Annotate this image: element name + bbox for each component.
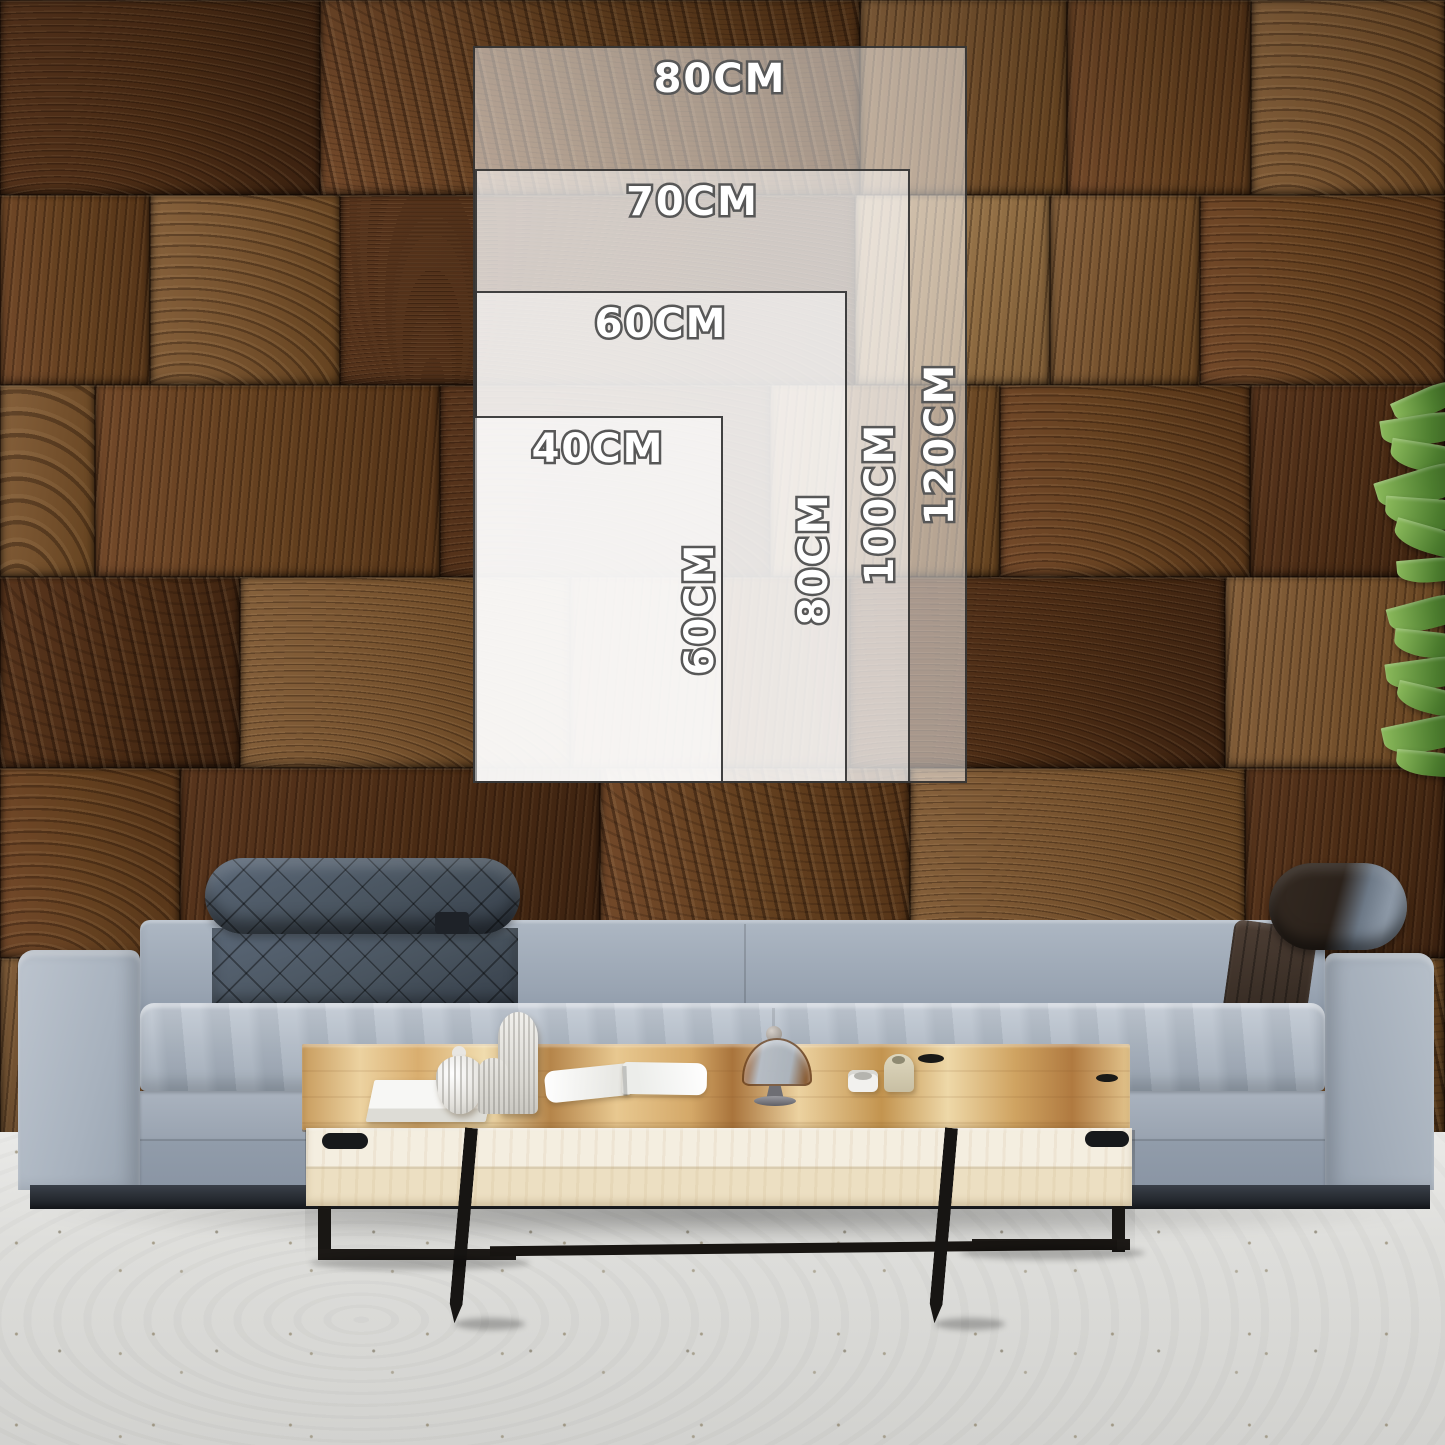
dome-foot [754,1096,796,1106]
sofa-right-arm [1325,953,1434,1190]
table-grommet [918,1054,944,1063]
table-apron [306,1128,1132,1206]
width-label-40cm: 40CM [475,426,721,472]
height-label-120cm: 120CM [917,363,963,526]
headrest-strap [435,912,469,934]
headrest-roll [205,858,520,934]
wall-tile [1200,195,1445,385]
wall-tile [1050,195,1200,385]
height-label-100cm: 100CM [857,423,903,586]
width-label-70cm: 70CM [477,179,908,225]
height-label-120cm-wrap: 120CM [918,359,962,529]
leg-shadow [935,1318,1005,1330]
size-rect-40x60: 40CM 60CM [473,416,723,783]
candle-beige-wick [892,1056,905,1064]
height-label-100cm-wrap: 100CM [858,419,902,589]
living-room-size-guide: 80CM 120CM 70CM 100CM 60CM 80CM 40CM 60C… [0,0,1445,1445]
wall-tile [1067,0,1251,195]
wall-tile [0,385,95,577]
table-handle-left [322,1133,368,1149]
height-label-60cm: 60CM [677,543,723,676]
wall-tile [0,0,320,195]
open-book-left-page [544,1063,631,1104]
sofa-left-arm [18,950,140,1190]
wall-tile [0,195,150,385]
wall-tile [1251,0,1445,195]
height-label-80cm-wrap: 80CM [792,474,836,644]
table-handle-right [1085,1131,1129,1147]
width-label-60cm: 60CM [477,301,845,347]
wall-tile [150,195,340,385]
open-book-right-page [623,1062,708,1095]
leg-shadow [310,1256,530,1270]
candle-cup-opening [854,1072,872,1080]
height-label-60cm-wrap: 60CM [678,524,722,694]
open-book [544,1059,705,1105]
wall-tile [95,385,440,577]
width-label-80cm: 80CM [475,56,965,102]
leg-shadow [960,1246,1145,1260]
leg-shadow [455,1318,525,1330]
vase-small [478,1058,508,1114]
wall-tile [0,577,240,768]
height-label-80cm: 80CM [791,493,837,626]
headrest-flap [212,928,518,1008]
bolster-pillow [1269,863,1407,950]
wall-tile [1000,385,1250,577]
table-grommet [1096,1074,1118,1082]
